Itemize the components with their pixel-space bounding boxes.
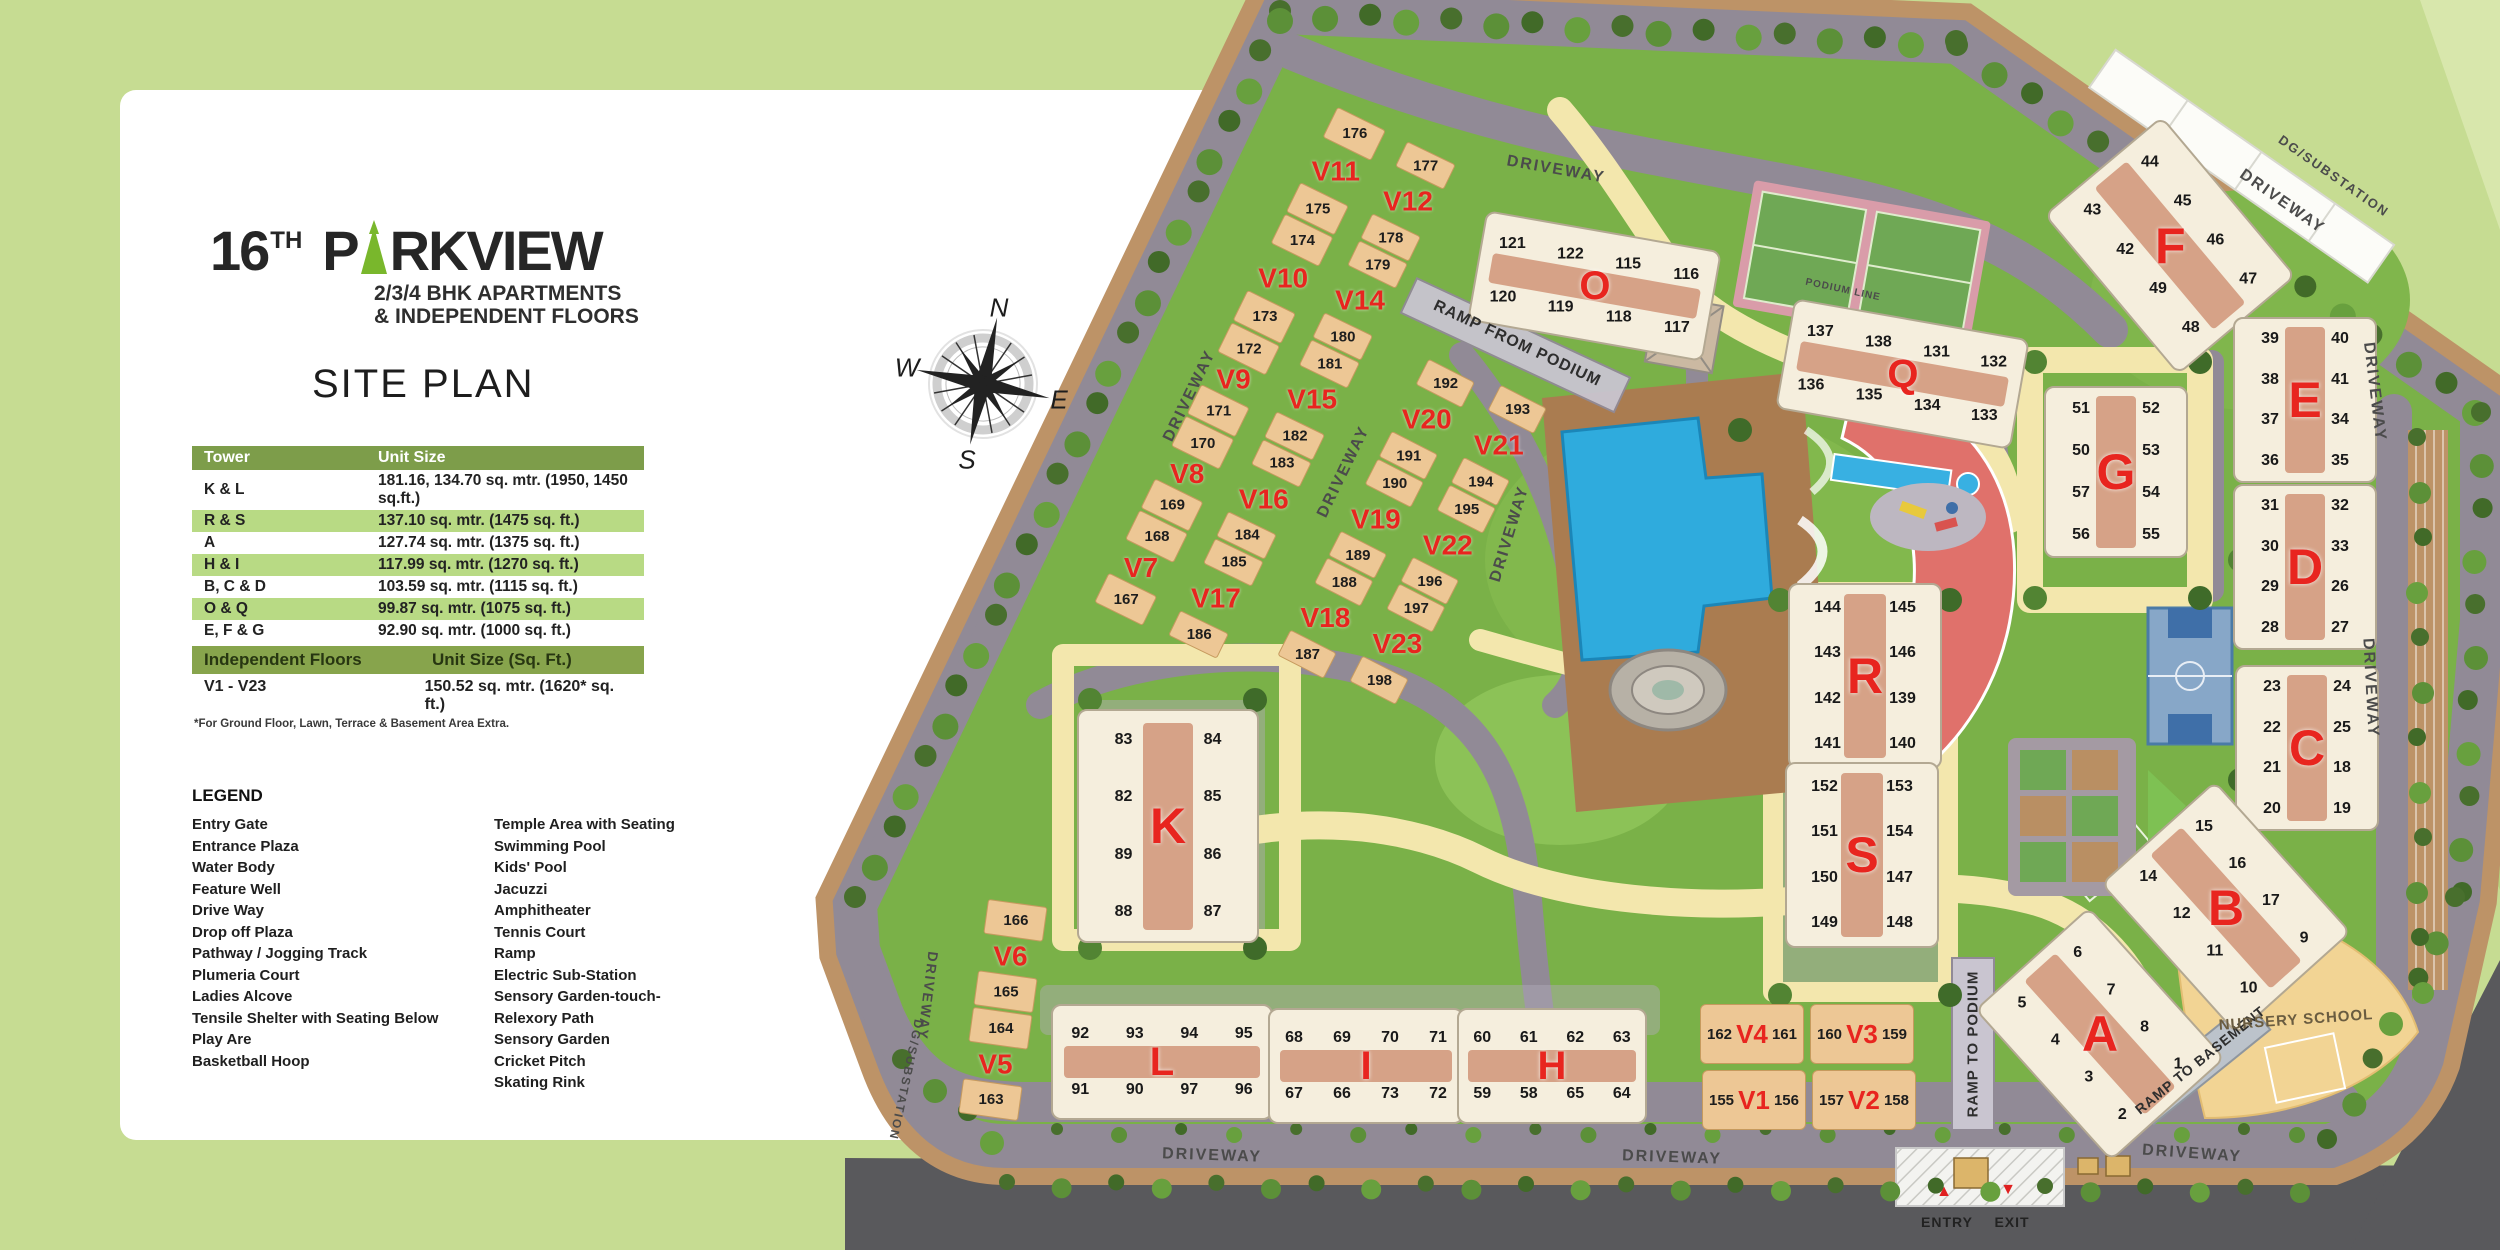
tower-table-row: E, F & G92.90 sq. mtr. (1000 sq. ft.) [192,620,644,642]
unit-number: 48 [2145,284,2235,371]
unit-number: 53 [2116,430,2186,472]
map-label: DG/SUBSTATION [2276,132,2392,220]
tree-icon [357,220,391,279]
unit-number: 42 [2080,206,2170,293]
tower-label-C: C [2289,723,2325,773]
unit-number: 179 [1347,240,1408,289]
unit-number: 32 [2305,486,2375,527]
tower-Q: 137138131132136135134133Q [1775,298,2030,450]
unit-number: 147 [1862,855,1937,901]
unit-number: 62 [1552,1010,1599,1066]
unit-number: 155 [1709,1092,1734,1109]
unit-number: 25 [2307,708,2377,749]
unit-number: 122 [1536,223,1603,286]
unit-number: 196 [1400,556,1459,605]
unit-number: 176 [1323,107,1386,161]
unit-number: 118 [1585,286,1652,349]
unit-number: 66 [1318,1066,1366,1122]
tower-label-A: A [2082,1009,2118,1059]
unit-number: 156 [1774,1092,1799,1109]
tower-label-Q: Q [1886,354,1917,394]
map-label: DRIVEWAY [1314,423,1374,521]
vblock-V2: 157V2158 [1812,1070,1916,1130]
swimming-pool [1562,418,1772,660]
vblock-label-V20: V20 [1391,385,1462,454]
tower-table-cell: 127.74 sq. mtr. (1375 sq. ft.) [366,532,644,554]
unit-number: 68 [1270,1010,1318,1066]
legend-item: Basketball Hoop [192,1051,494,1073]
unit-number: 144 [1790,585,1865,631]
unit-number: 195 [1437,484,1496,533]
legend-title: LEGEND [192,786,675,806]
vblock-label-V14: V14 [1324,266,1396,335]
tower-table-cell: 137.10 sq. mtr. (1475 sq. ft.) [366,510,644,532]
tower-table: Tower Unit Size K & L181.16, 134.70 sq. … [192,446,644,642]
unit-number: 131 [1902,321,1969,384]
unit-number: 57 [2046,472,2116,514]
unit-number: 159 [1882,1026,1907,1043]
unit-number: 22 [2237,708,2307,749]
ramp-to-basement-lane [2131,1002,2270,1124]
unit-number: 160 [1817,1026,1842,1043]
unit-number: 145 [1865,585,1940,631]
tower-S: 152153151154150147149148S [1785,762,1939,948]
unit-number: 71 [1414,1010,1462,1066]
unit-number: 29 [2235,567,2305,608]
play-area [1870,483,1986,551]
unit-number: 180 [1312,312,1373,361]
unit-number: 21 [2237,748,2307,789]
unit-number: 59 [1459,1066,1506,1122]
legend-item: Entry Gate [192,814,494,836]
vblock-label-V11: V11 [1300,137,1372,205]
tower-table-cell: O & Q [192,598,366,620]
compass-south: S [958,445,975,476]
unit-number: 19 [2307,789,2377,830]
map-label: ▼ [2000,1181,2016,1199]
tower-table-cell: B, C & D [192,576,366,598]
unit-number: 63 [1599,1010,1646,1066]
tower-table-row: A127.74 sq. mtr. (1375 sq. ft.) [192,532,644,554]
vblock-V3: 160V3159 [1810,1004,1914,1064]
unit-number: 67 [1270,1066,1318,1122]
basketball-court [2148,608,2232,744]
legend-item: Pathway / Jogging Track [192,943,494,965]
unit-number: 24 [2307,667,2377,708]
unit-number: 41 [2305,360,2375,401]
unit-number: 177 [1395,141,1456,190]
unit-number: 150 [1787,855,1862,901]
legend-item: Drive Way [192,900,494,922]
parking-strip [975,1142,2325,1172]
unit-number: 4 [2011,997,2100,1084]
unit-number: 65 [1552,1066,1599,1122]
unit-number: 9 [2259,895,2348,982]
tower-table-cell: R & S [192,510,366,532]
legend-col-2: Temple Area with SeatingSwimming PoolKid… [494,814,675,1094]
floors-header-left: Independent Floors [204,650,432,670]
vblock-V1: 155V1156 [1702,1070,1806,1130]
ramp-from-podium-lane [1401,278,1630,412]
tower-table-row: B, C & D103.59 sq. mtr. (1115 sq. ft.) [192,576,644,598]
legend: LEGEND Entry GateEntrance PlazaWater Bod… [192,786,675,1094]
ramp-to-podium-lane [1952,958,1994,1130]
unit-number: 7 [2067,947,2156,1034]
unit-number: 153 [1862,764,1937,810]
compass-rose: N E S W [898,296,1070,472]
legend-item: Sensory Garden [494,1029,675,1051]
tower-table-cell: H & I [192,554,366,576]
tower-H: 6061626359586564H [1457,1008,1647,1124]
vblock-label-V23: V23 [1362,610,1433,679]
legend-item: Entrance Plaza [192,836,494,858]
unit-number: 115 [1594,233,1661,296]
unit-number: 33 [2305,527,2375,568]
cricket-pitch [2049,798,2154,901]
unit-number: 38 [2235,360,2305,401]
vblock-label-V12: V12 [1372,167,1444,236]
tower-label-G: G [2097,447,2136,497]
unit-number: 132 [1960,331,2027,394]
map-label: ▲ [1936,1183,1952,1201]
unit-number: 50 [2046,430,2116,472]
unit-number: 15 [2159,784,2248,871]
vblock-label-V18: V18 [1290,584,1361,653]
tower-table-cell: A [192,532,366,554]
unit-number: 121 [1478,212,1545,275]
unit-number: 2 [2078,1071,2167,1158]
unit-number: 46 [2170,197,2260,284]
tower-table-row: R & S137.10 sq. mtr. (1475 sq. ft.) [192,510,644,532]
clubhouse [1836,378,2015,792]
unit-number: 70 [1366,1010,1414,1066]
unit-number: 191 [1379,431,1438,480]
brand-ordinal: TH [270,227,302,255]
brand-number: 16 [210,223,268,279]
unit-number: 142 [1790,676,1865,722]
tower-I: 6869707167667372I [1268,1008,1464,1124]
map-label: DRIVEWAY [1505,152,1606,187]
map-label: RAMP TO BASEMENT [2132,1003,2268,1118]
unit-number: 31 [2235,486,2305,527]
legend-item: Electric Sub-Station [494,965,675,987]
unit-number: 23 [2237,667,2307,708]
unit-number: 143 [1790,631,1865,677]
map-label: EXIT [1994,1214,2029,1230]
tower-table-row: K & L181.16, 134.70 sq. mtr. (1950, 1450… [192,470,644,510]
legend-item: Jacuzzi [494,879,675,901]
tower-table-row: H & I117.99 sq. mtr. (1270 sq. ft.) [192,554,644,576]
tower-table-header-size: Unit Size [366,446,644,470]
unit-number: 119 [1527,276,1594,339]
unit-number: 117 [1642,296,1709,359]
unit-number: 135 [1835,364,1902,427]
tower-F: 4344424549464847F [2044,115,2296,374]
brand-logo: 16THPRKVIEW 2/3/4 BHK APARTMENTS & INDEP… [210,220,639,328]
unit-number: 69 [1318,1010,1366,1066]
unit-number: 138 [1844,311,1911,374]
tower-C: 2324222521182019C [2235,665,2379,831]
vblock-label-V15: V15 [1276,365,1348,434]
lawn [1485,410,1915,710]
unit-number: 154 [1862,810,1937,856]
legend-item: Drop off Plaza [192,922,494,944]
tower-table-cell: 181.16, 134.70 sq. mtr. (1950, 1450 sq.f… [366,470,644,510]
unit-number: 193 [1487,385,1546,434]
legend-col-1: Entry GateEntrance PlazaWater BodyFeatur… [192,814,494,1094]
bg-chevron [2420,0,2500,230]
tower-E: 3940384137343635E [2233,317,2377,483]
unit-number: 11 [2170,908,2259,995]
unit-number: 189 [1328,530,1387,579]
amenities [1401,50,2448,1206]
independent-floors-strip: 198V23197196V22195194V21193 [1348,384,1548,707]
unit-number: 40 [2305,319,2375,360]
unit-number: 178 [1360,213,1421,262]
unit-number: 39 [2235,319,2305,360]
floors-range: V1 - V23 [204,678,425,714]
unit-number: 146 [1865,631,1940,677]
pool-deck [1542,372,1834,812]
unit-number: 55 [2116,514,2186,556]
unit-number: 136 [1777,354,1844,417]
unit-number: 148 [1862,901,1937,947]
unit-number: 18 [2307,748,2377,789]
unit-number: 20 [2237,789,2307,830]
temple-area [1645,294,1724,373]
tower-table-header-tower: Tower [192,446,366,470]
unit-number: 1 [2133,1021,2222,1108]
unit-number: 182 [1264,412,1325,461]
info-panel: 16THPRKVIEW 2/3/4 BHK APARTMENTS & INDEP… [120,90,1250,1140]
unit-number: 139 [1865,676,1940,722]
vblock-label-V4: V4 [1736,1019,1768,1050]
unit-number: 37 [2235,400,2305,441]
outer-road [2350,960,2500,1250]
legend-item: Ramp [494,943,675,965]
legend-item: Sensory Garden-touch- [494,986,675,1008]
unit-number: 54 [2116,472,2186,514]
sensory-garden [2008,738,2186,926]
independent-floors-strip: 187V18188189V19190191V20192 [1276,358,1476,681]
unit-number: 34 [2305,400,2375,441]
compass-east: E [1050,385,1067,416]
unit-number: 120 [1469,266,1536,329]
vblock-V4: 162V4161 [1700,1004,1804,1064]
tower-O: 121122115116120119118117O [1467,210,1722,362]
tower-label-S: S [1845,830,1878,880]
unit-number: 181 [1299,340,1360,389]
vblock-label-V21: V21 [1463,411,1534,480]
map-label: DRIVEWAY [2142,1142,2243,1167]
floors-footnote: *For Ground Floor, Lawn, Terrace & Basem… [192,718,644,730]
kids-pool [1831,454,1951,496]
unit-number: 14 [2103,834,2192,921]
unit-number: 35 [2305,441,2375,482]
page-title: SITE PLAN [312,362,535,407]
unit-number: 10 [2204,945,2293,1032]
vblock-label-V10: V10 [1247,244,1319,313]
unit-number: 45 [2137,158,2227,245]
unit-number: 157 [1819,1092,1844,1109]
tower-table-cell: 103.59 sq. mtr. (1115 sq. ft.) [366,576,644,598]
unit-number: 58 [1506,1066,1553,1122]
unit-number: 151 [1787,810,1862,856]
tower-table-cell: 117.99 sq. mtr. (1270 sq. ft.) [366,554,644,576]
tower-label-I: I [1360,1046,1371,1086]
legend-item: Kids' Pool [494,857,675,879]
legend-item: Feature Well [192,879,494,901]
unit-number: 6 [2033,910,2122,997]
jacuzzi [1957,473,1979,495]
tower-label-D: D [2287,542,2323,592]
amphitheater [1610,650,1726,730]
tower-label-F: F [2155,220,2186,270]
tower-label-O: O [1578,266,1609,306]
vblock-label-V1: V1 [1738,1085,1770,1116]
legend-item: Tensile Shelter with Seating Below [192,1008,494,1030]
tower-label-E: E [2288,375,2321,425]
legend-item: Cricket Pitch [494,1051,675,1073]
map-label: ENTRY [1921,1214,1973,1230]
unit-number: 56 [2046,514,2116,556]
map-label: DRIVEWAY [1622,1147,1722,1168]
compass-west: W [895,353,920,384]
tower-label-H: H [1538,1046,1567,1086]
unit-number: 43 [2047,166,2137,253]
vblock-label-V3: V3 [1846,1019,1878,1050]
map-label: NURSERY SCHOOL [2218,1006,2374,1034]
unit-number: 28 [2235,608,2305,649]
legend-item: Ladies Alcove [192,986,494,1008]
tower-B: 141512161117109B [2101,781,2352,1036]
unit-number: 16 [2193,821,2282,908]
unit-number: 44 [2104,118,2194,205]
unit-number: 190 [1365,458,1424,507]
brand-word-start: P [322,223,357,279]
unit-number: 47 [2203,236,2293,323]
unit-number: 161 [1772,1026,1797,1043]
tower-label-R: R [1847,651,1883,701]
floors-header-right: Unit Size (Sq. Ft.) [432,650,572,670]
tower-table-cell: 99.87 sq. mtr. (1075 sq. ft.) [366,598,644,620]
tower-R: 144145143146142139141140R [1788,583,1942,769]
unit-number: 188 [1314,558,1373,607]
unit-number: 36 [2235,441,2305,482]
unit-number: 134 [1893,374,1960,437]
tower-table-cell: 92.90 sq. mtr. (1000 sq. ft.) [366,620,644,642]
unit-number: 26 [2305,567,2375,608]
unit-number: 49 [2113,245,2203,332]
tower-table-cell: E, F & G [192,620,366,642]
unit-number: 141 [1790,722,1865,768]
legend-item: Tennis Court [494,922,675,944]
map-label: RAMP TO PODIUM [1965,971,1982,1118]
unit-number: 72 [1414,1066,1462,1122]
unit-number: 133 [1950,384,2017,447]
unit-number: 60 [1459,1010,1506,1066]
unit-number: 162 [1707,1026,1732,1043]
outer-road [845,1158,2500,1250]
lawn [2090,190,2410,410]
unit-number: 175 [1286,182,1349,236]
unit-number: 3 [2044,1034,2133,1121]
unit-number: 187 [1277,630,1336,679]
legend-item: Swimming Pool [494,836,675,858]
parking-strip [2408,430,2448,990]
brand-subtitle: 2/3/4 BHK APARTMENTS & INDEPENDENT FLOOR… [374,282,639,328]
legend-item: Water Body [192,857,494,879]
dg-substation-strip [2089,50,2394,283]
unit-number: 152 [1787,764,1862,810]
unit-number: 12 [2137,871,2226,958]
unit-number: 192 [1415,359,1474,408]
unit-number: 51 [2046,388,2116,430]
legend-item: Plumeria Court [192,965,494,987]
unit-number: 140 [1865,722,1940,768]
unit-number: 194 [1451,457,1510,506]
unit-number: 137 [1786,300,1853,363]
tower-label-B: B [2208,883,2244,933]
legend-item: Skating Rink [494,1072,675,1094]
map-label: DRIVEWAY [2236,166,2328,238]
map-label: DRIVEWAY [2358,638,2381,739]
tower-D: 3132303329262827D [2233,484,2377,650]
map-label: DRIVEWAY [2359,341,2389,442]
map-label: DRIVEWAY [1162,1145,1262,1166]
unit-number: 8 [2100,984,2189,1071]
unit-number: 52 [2116,388,2186,430]
entry-gate [1896,1148,2130,1206]
tennis-court [1732,180,1991,348]
unit-number: 61 [1506,1010,1553,1066]
map-label: PODIUM LINE [1804,277,1881,304]
vblock-label-V22: V22 [1413,511,1484,580]
unit-number: 149 [1787,901,1862,947]
unit-number: 17 [2226,858,2315,945]
tower-A: 56473821A [1975,907,2226,1162]
tower-table-cell: K & L [192,470,366,510]
vblock-label-V2: V2 [1848,1085,1880,1116]
unit-number: 5 [1977,960,2066,1047]
nursery-school-area [2172,902,2418,1118]
legend-item: Relexory Path [494,1008,675,1030]
map-label: RAMP FROM PODIUM [1430,297,1603,391]
legend-item: Play Are [192,1029,494,1051]
unit-number: 174 [1270,214,1333,268]
unit-number: 198 [1349,656,1408,705]
unit-number: 27 [2305,608,2375,649]
unit-number: 197 [1386,584,1445,633]
tower-G: 5152505357545655G [2044,386,2188,558]
bg-chevron [2398,430,2500,890]
unit-number: 64 [1599,1066,1646,1122]
tower-table-row: O & Q99.87 sq. mtr. (1075 sq. ft.) [192,598,644,620]
floors-size: 150.52 sq. mtr. (1620* sq. ft.) [425,678,632,714]
compass-north: N [990,293,1009,324]
brand-word-end: RKVIEW [390,223,602,279]
unit-number: 183 [1251,439,1312,488]
vblock-label-V19: V19 [1341,485,1412,554]
unit-number: 30 [2235,527,2305,568]
legend-item: Temple Area with Seating [494,814,675,836]
unit-number: 116 [1652,243,1719,306]
legend-item: Amphitheater [494,900,675,922]
unit-number: 158 [1884,1092,1909,1109]
unit-number: 73 [1366,1066,1414,1122]
lawn [1435,675,1685,845]
map-label: DRIVEWAY [1487,484,1533,585]
